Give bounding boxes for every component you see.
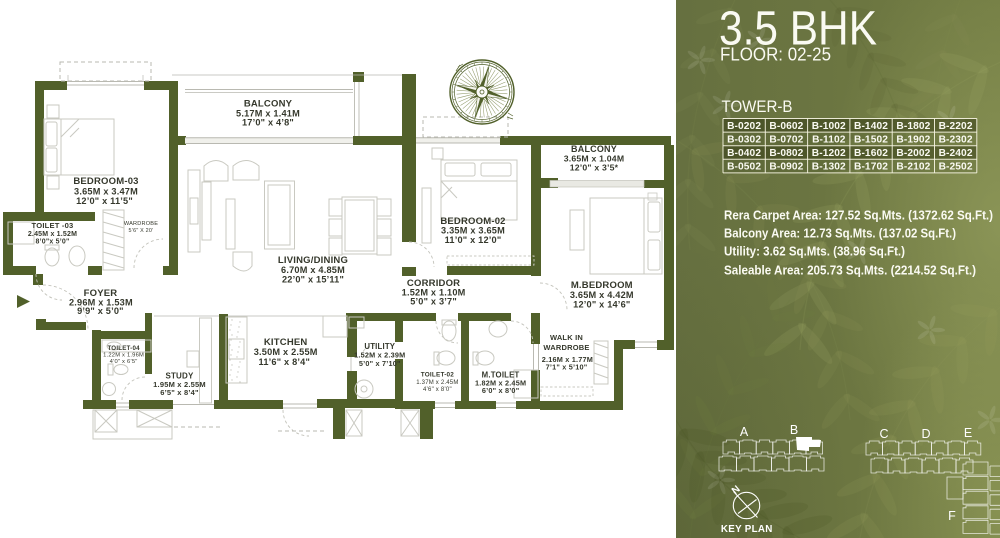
svg-text:B-1002: B-1002	[812, 121, 846, 132]
svg-text:6.70M x 4.85M: 6.70M x 4.85M	[281, 265, 345, 275]
svg-text:F: F	[948, 509, 956, 523]
svg-text:WARDROBE: WARDROBE	[124, 221, 158, 227]
svg-text:B-0402: B-0402	[727, 148, 761, 159]
svg-text:B-2002: B-2002	[896, 148, 930, 159]
svg-text:B-2302: B-2302	[939, 135, 973, 146]
svg-text:17’0" x 4’8": 17’0" x 4’8"	[242, 118, 294, 128]
svg-text:B-1602: B-1602	[854, 148, 888, 159]
svg-text:B-2402: B-2402	[939, 148, 973, 159]
svg-text:3.50M x 2.55M: 3.50M x 2.55M	[254, 347, 318, 357]
svg-text:12’0" x 11’5": 12’0" x 11’5"	[76, 196, 133, 206]
svg-text:B-2102: B-2102	[896, 162, 930, 173]
svg-text:3.65M x 4.42M: 3.65M x 4.42M	[570, 290, 634, 300]
svg-text:D: D	[921, 427, 930, 441]
svg-text:B-0502: B-0502	[727, 162, 761, 173]
svg-text:3.65M x 3.47M: 3.65M x 3.47M	[74, 187, 138, 197]
svg-text:Rera Carpet Area: 127.52 Sq.Mt: Rera Carpet Area: 127.52 Sq.Mts. (1372.6…	[724, 208, 993, 223]
svg-text:4’0" x 6’5": 4’0" x 6’5"	[110, 359, 138, 365]
svg-text:1.37M x 2.45M: 1.37M x 2.45M	[416, 380, 458, 386]
svg-text:B-1502: B-1502	[854, 135, 888, 146]
svg-text:B-0702: B-0702	[769, 135, 803, 146]
svg-text:3.35M x 3.65M: 3.35M x 3.65M	[441, 226, 505, 236]
svg-text:B-1302: B-1302	[812, 162, 846, 173]
svg-text:11’6" x 8’4": 11’6" x 8’4"	[259, 357, 310, 367]
svg-text:B-0602: B-0602	[769, 121, 803, 132]
svg-text:Balcony Area: 12.73 Sq.Mts. (1: Balcony Area: 12.73 Sq.Mts. (137.02 Sq.F…	[724, 226, 956, 241]
svg-text:6’5" x 8’4": 6’5" x 8’4"	[160, 388, 199, 397]
svg-text:12’0" x 14’6": 12’0" x 14’6"	[573, 300, 630, 310]
svg-text:TOILET-04: TOILET-04	[107, 345, 140, 352]
svg-text:B-1202: B-1202	[812, 148, 846, 159]
svg-text:BALCONY: BALCONY	[571, 144, 617, 154]
svg-text:KEY PLAN: KEY PLAN	[721, 524, 773, 535]
svg-text:Utility: 3.62 Sq.Mts. (38.96 S: Utility: 3.62 Sq.Mts. (38.96 Sq.Ft.)	[724, 244, 905, 259]
svg-text:8’0"x 5’0": 8’0"x 5’0"	[36, 239, 70, 246]
svg-text:B-1802: B-1802	[896, 121, 930, 132]
svg-text:B-1702: B-1702	[854, 162, 888, 173]
svg-text:A: A	[740, 425, 749, 439]
svg-text:4’6" x 8’0": 4’6" x 8’0"	[423, 387, 452, 393]
svg-text:B-0302: B-0302	[727, 135, 761, 146]
svg-text:WARDROBE: WARDROBE	[543, 343, 589, 352]
svg-text:B-0202: B-0202	[727, 121, 761, 132]
svg-text:FLOOR: 02-25: FLOOR: 02-25	[720, 45, 831, 65]
svg-text:6’0" x 8’0": 6’0" x 8’0"	[482, 386, 520, 395]
svg-text:WALK IN: WALK IN	[550, 333, 583, 342]
svg-text:BEDROOM-03: BEDROOM-03	[73, 176, 138, 187]
svg-text:B-1902: B-1902	[896, 135, 930, 146]
svg-text:TOILET-02: TOILET-02	[421, 372, 455, 379]
svg-text:B-0802: B-0802	[769, 148, 803, 159]
svg-text:E: E	[964, 426, 972, 440]
svg-text:9’9" x 5’0": 9’9" x 5’0"	[77, 306, 124, 316]
svg-text:11’0" x 12’0": 11’0" x 12’0"	[445, 235, 502, 245]
svg-text:B-1402: B-1402	[854, 121, 888, 132]
svg-text:C: C	[879, 427, 888, 441]
svg-text:B: B	[790, 423, 798, 437]
svg-text:1.22M x 1.96M: 1.22M x 1.96M	[103, 353, 144, 359]
svg-text:TOILET -03: TOILET -03	[32, 221, 74, 230]
svg-text:B-0902: B-0902	[769, 162, 803, 173]
svg-text:22’0" x 15’11": 22’0" x 15’11"	[282, 275, 344, 285]
svg-text:7’1" x 5’10": 7’1" x 5’10"	[546, 363, 588, 372]
svg-text:TOWER-B: TOWER-B	[722, 98, 793, 116]
svg-text:B-2202: B-2202	[939, 121, 973, 132]
svg-text:5’0" x 7’10": 5’0" x 7’10"	[359, 359, 401, 368]
svg-text:B-1102: B-1102	[812, 135, 846, 146]
svg-text:2.45M x 1.52M: 2.45M x 1.52M	[28, 231, 77, 238]
svg-text:12’0" x 3’5*: 12’0" x 3’5*	[570, 163, 619, 173]
svg-text:5’6" X 20’: 5’6" X 20’	[129, 228, 154, 234]
svg-text:B-2502: B-2502	[939, 162, 973, 173]
svg-text:Saleable Area: 205.73 Sq.Mts.: Saleable Area: 205.73 Sq.Mts. (2214.52 S…	[724, 263, 976, 278]
svg-text:5’0" x 3’7": 5’0" x 3’7"	[410, 297, 457, 307]
